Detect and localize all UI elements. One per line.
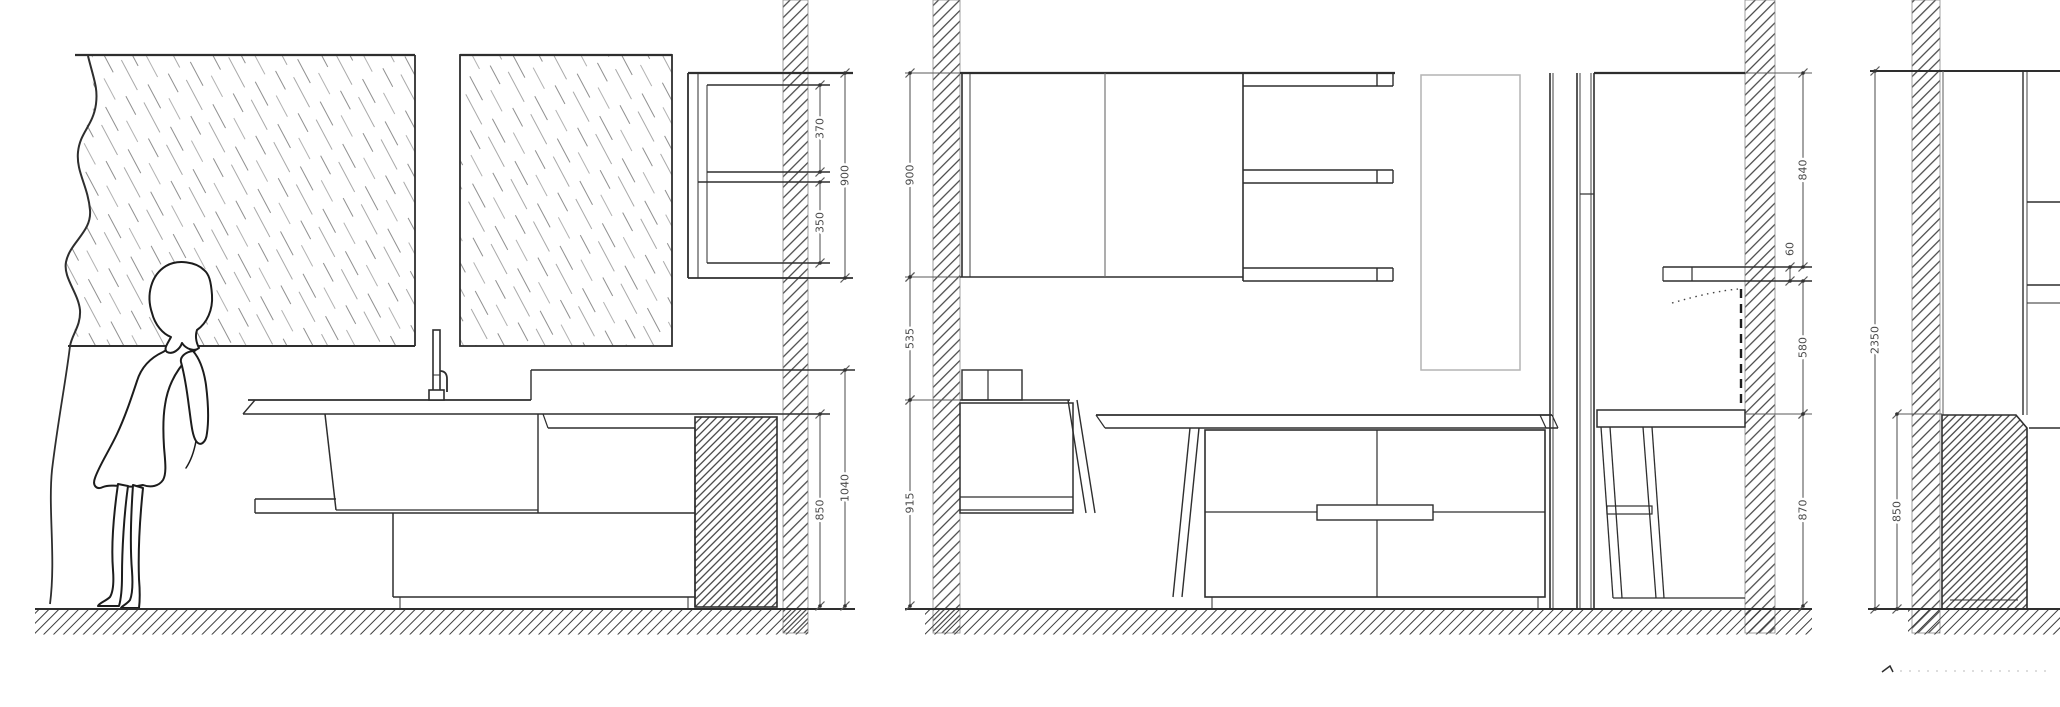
door-swing bbox=[1672, 289, 1741, 404]
figure-hand bbox=[186, 441, 196, 468]
dim-535: 535 bbox=[904, 273, 917, 405]
dim-870-label: 870 bbox=[1797, 500, 1810, 521]
dim-2350: 2350 bbox=[1869, 67, 1882, 614]
dim-350: 350 bbox=[814, 178, 827, 268]
hung-cabinet-slant bbox=[325, 414, 336, 510]
open-shelves bbox=[1243, 73, 1393, 281]
angled-leg bbox=[1173, 428, 1190, 597]
dim-60-label: 60 bbox=[1784, 242, 1797, 256]
stray-plot-marks bbox=[1882, 666, 2052, 672]
dim-915: 915 bbox=[904, 396, 917, 611]
elevation-right bbox=[1870, 71, 2060, 609]
console-table bbox=[1597, 410, 1745, 598]
hung-cabinet bbox=[960, 403, 1073, 513]
angled-leg bbox=[1077, 400, 1095, 513]
drawer-unit bbox=[1173, 428, 1545, 608]
dim-350-label: 350 bbox=[814, 212, 827, 233]
kitchen-elevation-drawing: 3703509008501040900535915840605808702350… bbox=[0, 0, 2060, 707]
dim-1040: 1040 bbox=[839, 366, 852, 611]
sink-faucet bbox=[429, 330, 447, 400]
wall-section-hatch bbox=[1912, 0, 1940, 633]
wall-section-columns bbox=[783, 0, 1940, 633]
drawer-handle bbox=[1317, 505, 1433, 520]
dim-900-mid-label: 900 bbox=[904, 165, 917, 186]
counter-run bbox=[960, 370, 1558, 513]
dim-535-label: 535 bbox=[904, 328, 917, 349]
island-base bbox=[255, 414, 777, 608]
dim-60: 60 bbox=[1784, 242, 1797, 286]
wall-cabinets bbox=[960, 73, 1395, 281]
angled-leg bbox=[1182, 428, 1199, 597]
dim-2350-label: 2350 bbox=[1869, 326, 1882, 354]
section-hatch-block bbox=[695, 417, 777, 607]
wall-section-hatch bbox=[933, 0, 960, 633]
console-shelf bbox=[1607, 506, 1652, 514]
figure-arm bbox=[181, 351, 208, 444]
floor-hatch bbox=[35, 610, 808, 635]
wall-section-hatch bbox=[1745, 0, 1775, 633]
dim-850-right-label: 850 bbox=[1891, 501, 1904, 522]
elevation-left bbox=[50, 55, 855, 608]
dim-1040-label: 1040 bbox=[839, 474, 852, 502]
dim-840: 840 bbox=[1797, 69, 1810, 272]
dim-370-label: 370 bbox=[814, 118, 827, 139]
dim-870: 870 bbox=[1797, 410, 1810, 611]
dim-915-label: 915 bbox=[904, 493, 917, 514]
dim-580-label: 580 bbox=[1797, 337, 1810, 358]
angled-leg bbox=[1068, 400, 1086, 513]
dim-850-right: 850 bbox=[1891, 410, 1904, 614]
floor bbox=[35, 609, 2060, 635]
tall-faint-panel bbox=[1421, 75, 1520, 370]
dim-370: 370 bbox=[814, 81, 827, 177]
partition-panel bbox=[1550, 73, 1745, 608]
side-shelf bbox=[255, 499, 336, 513]
countertop-appliance bbox=[962, 370, 1022, 400]
dim-850-left-label: 850 bbox=[814, 500, 827, 521]
dim-900-left-label: 900 bbox=[839, 165, 852, 186]
elevation-middle bbox=[960, 73, 1812, 608]
dim-840-label: 840 bbox=[1797, 160, 1810, 181]
curtain-drape bbox=[50, 346, 70, 604]
dim-850-left: 850 bbox=[814, 410, 827, 611]
wall-section-hatch bbox=[783, 0, 808, 633]
dim-900-left: 900 bbox=[839, 69, 852, 283]
window-1 bbox=[50, 55, 416, 604]
figure-leg bbox=[98, 484, 128, 606]
window-2 bbox=[460, 55, 672, 346]
wall-shelf-unit bbox=[688, 73, 853, 278]
counter-bevel bbox=[543, 414, 548, 428]
floor-hatch bbox=[925, 610, 1812, 635]
door-swing-arc bbox=[1672, 289, 1739, 303]
dim-580: 580 bbox=[1797, 277, 1810, 419]
floor-hatch bbox=[1908, 610, 2060, 635]
section-hatch-block bbox=[1942, 415, 2027, 609]
dim-900-mid: 900 bbox=[904, 69, 917, 282]
elevation-svg: 3703509008501040900535915840605808702350… bbox=[0, 0, 2060, 707]
